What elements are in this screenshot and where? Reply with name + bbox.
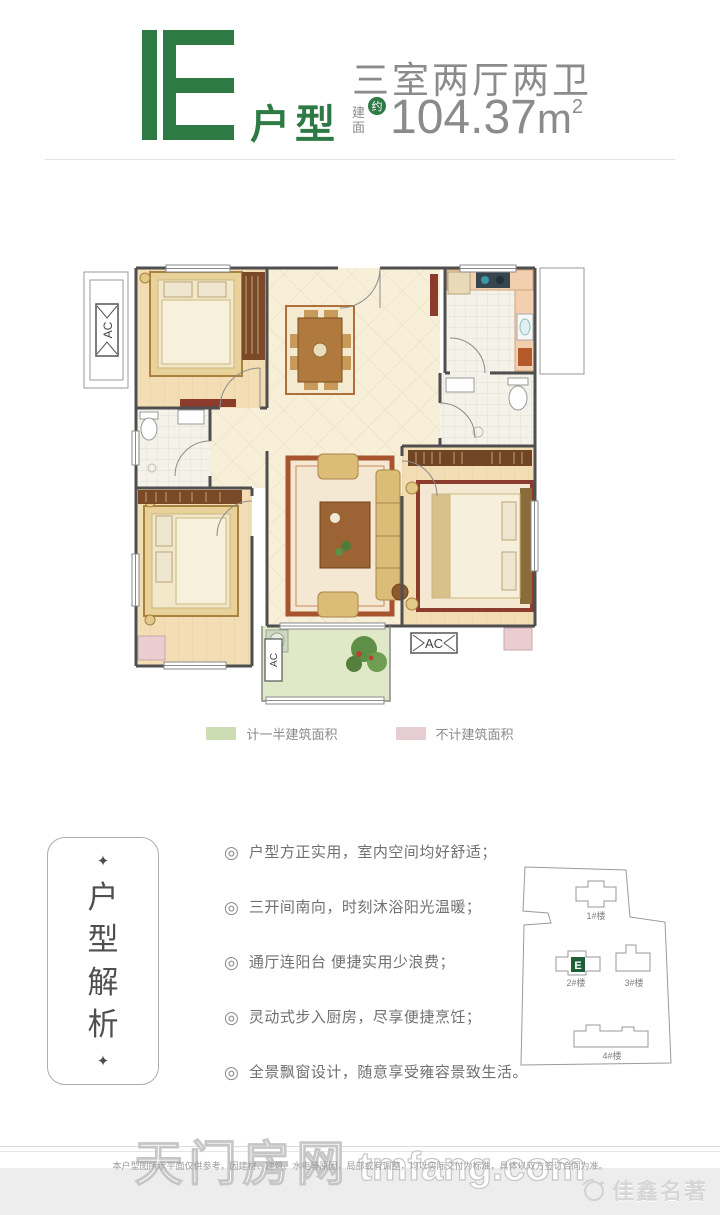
armchair-top bbox=[318, 454, 358, 479]
unit-letter-e-logo bbox=[142, 30, 234, 140]
armchair-bottom bbox=[318, 592, 358, 617]
brand-logo: 佳鑫名著 bbox=[580, 1174, 708, 1206]
panel-char-2: 型 bbox=[88, 924, 119, 955]
bullet-circle-icon: ◎ bbox=[224, 954, 239, 971]
area-number: 104.37 bbox=[390, 94, 537, 142]
brand-swirl-icon bbox=[580, 1177, 606, 1203]
toilet-right-bath bbox=[509, 386, 527, 410]
legend: 计一半建筑面积 不计建筑面积 bbox=[0, 724, 720, 743]
legend-item-excluded-area: 不计建筑面积 bbox=[396, 724, 514, 743]
ac-box-bottom: AC bbox=[411, 633, 457, 653]
brand-name: 佳鑫名著 bbox=[612, 1174, 708, 1206]
unit-type-label: 户型 bbox=[250, 92, 340, 150]
legend-swatch-green bbox=[206, 727, 236, 740]
bullet-text: 通厅连阳台 便捷实用少浪费； bbox=[249, 954, 455, 971]
master-bed bbox=[406, 482, 532, 610]
building-2-label: 2#楼 bbox=[566, 977, 585, 988]
area-unit: m bbox=[537, 98, 572, 140]
list-item: ◎ 户型方正实用，室内空间均好舒适； bbox=[224, 844, 528, 861]
legend-label-excluded-area: 不计建筑面积 bbox=[436, 724, 514, 743]
legend-item-half-area: 计一半建筑面积 bbox=[206, 724, 337, 743]
bullet-text: 全景飘窗设计，随意享受雍容景致生活。 bbox=[249, 1064, 528, 1081]
panel-char-1: 户 bbox=[88, 882, 119, 913]
site-map: E 1#楼 2#楼 3#楼 4#楼 bbox=[508, 845, 698, 1080]
analysis-panel: ✦ 户 型 解 析 ✦ bbox=[47, 837, 159, 1085]
tv-cabinet-top-left bbox=[180, 399, 236, 407]
diamond-icon: ✦ bbox=[97, 1052, 110, 1070]
sofa bbox=[376, 470, 400, 600]
ac-label-left: AC bbox=[101, 321, 115, 338]
panel-char-3: 解 bbox=[88, 967, 119, 998]
legend-label-half-area: 计一半建筑面积 bbox=[246, 724, 337, 743]
bullet-circle-icon: ◎ bbox=[224, 1064, 239, 1081]
list-item: ◎ 全景飘窗设计，随意享受雍容景致生活。 bbox=[224, 1064, 528, 1081]
bullet-text: 户型方正实用，室内空间均好舒适； bbox=[249, 844, 497, 861]
toilet-left-bath bbox=[141, 418, 157, 440]
disclaimer-text: 本户型图所示平面仅供参考，因建材、建筑、水电等原因，局部或有调整，均以实际交付为… bbox=[0, 1159, 720, 1172]
logo-left-bar bbox=[142, 30, 157, 140]
ac-label-bottom: AC bbox=[425, 636, 443, 651]
list-item: ◎ 三开间南向，时刻沐浴阳光温暖； bbox=[224, 899, 528, 916]
panel-char-4: 析 bbox=[88, 1009, 119, 1040]
ac-label-balcony: AC bbox=[269, 653, 280, 667]
ac-box-balcony: AC bbox=[265, 639, 282, 681]
master-wardrobe bbox=[408, 450, 532, 466]
bullet-circle-icon: ◎ bbox=[224, 1009, 239, 1026]
corridor-floor bbox=[210, 408, 267, 488]
bay-window-bottom-left bbox=[138, 636, 165, 660]
bullet-circle-icon: ◎ bbox=[224, 844, 239, 861]
kitchen-appliance bbox=[518, 348, 532, 366]
dining-set bbox=[286, 306, 354, 394]
legend-swatch-pink bbox=[396, 727, 426, 740]
living-room-set bbox=[288, 454, 408, 617]
bullet-circle-icon: ◎ bbox=[224, 899, 239, 916]
bed-bottom-left bbox=[144, 497, 238, 625]
floorplan-drawing: AC AC AC bbox=[80, 206, 640, 706]
logo-e-arm-top bbox=[163, 30, 234, 45]
area-prefix-line2: 面 bbox=[352, 120, 365, 136]
sink-left-bath bbox=[178, 410, 204, 424]
area-prefix-line1: 建 bbox=[352, 105, 365, 121]
list-item: ◎ 通厅连阳台 便捷实用少浪费； bbox=[224, 954, 528, 971]
building-1-label: 1#楼 bbox=[586, 910, 605, 921]
area-row: 建 面 约 104.37m2 bbox=[352, 94, 583, 142]
ac-box-left: AC bbox=[96, 304, 118, 356]
analysis-bullet-list: ◎ 户型方正实用，室内空间均好舒适； ◎ 三开间南向，时刻沐浴阳光温暖； ◎ 通… bbox=[224, 844, 528, 1119]
wardrobe-top-left bbox=[242, 272, 265, 360]
fridge bbox=[448, 272, 470, 294]
approx-badge: 约 bbox=[368, 97, 386, 115]
logo-e-arm-bottom bbox=[163, 125, 234, 140]
logo-e-arm-mid bbox=[163, 78, 234, 93]
building-4-label: 4#楼 bbox=[602, 1050, 621, 1061]
area-prefix: 建 面 bbox=[352, 105, 365, 136]
area-superscript: 2 bbox=[572, 97, 583, 117]
header-divider bbox=[45, 159, 675, 160]
side-table bbox=[392, 584, 408, 600]
entry-cabinet bbox=[430, 274, 438, 316]
bullet-text: 三开间南向，时刻沐浴阳光温暖； bbox=[249, 899, 482, 916]
list-item: ◎ 灵动式步入厨房，尽享便捷烹饪； bbox=[224, 1009, 528, 1026]
bay-window-bottom-right bbox=[504, 628, 532, 650]
unit-marker-letter: E bbox=[574, 960, 581, 972]
coffee-table bbox=[320, 502, 370, 568]
wardrobe-bottom-left bbox=[138, 490, 242, 504]
sink-right-bath bbox=[446, 378, 474, 392]
external-platform-top-right bbox=[540, 268, 584, 374]
bed-top-left bbox=[140, 272, 242, 376]
bullet-text: 灵动式步入厨房，尽享便捷烹饪； bbox=[249, 1009, 482, 1026]
area-value: 104.37m2 bbox=[390, 94, 583, 142]
diamond-icon: ✦ bbox=[97, 852, 110, 870]
building-3-label: 3#楼 bbox=[624, 977, 643, 988]
